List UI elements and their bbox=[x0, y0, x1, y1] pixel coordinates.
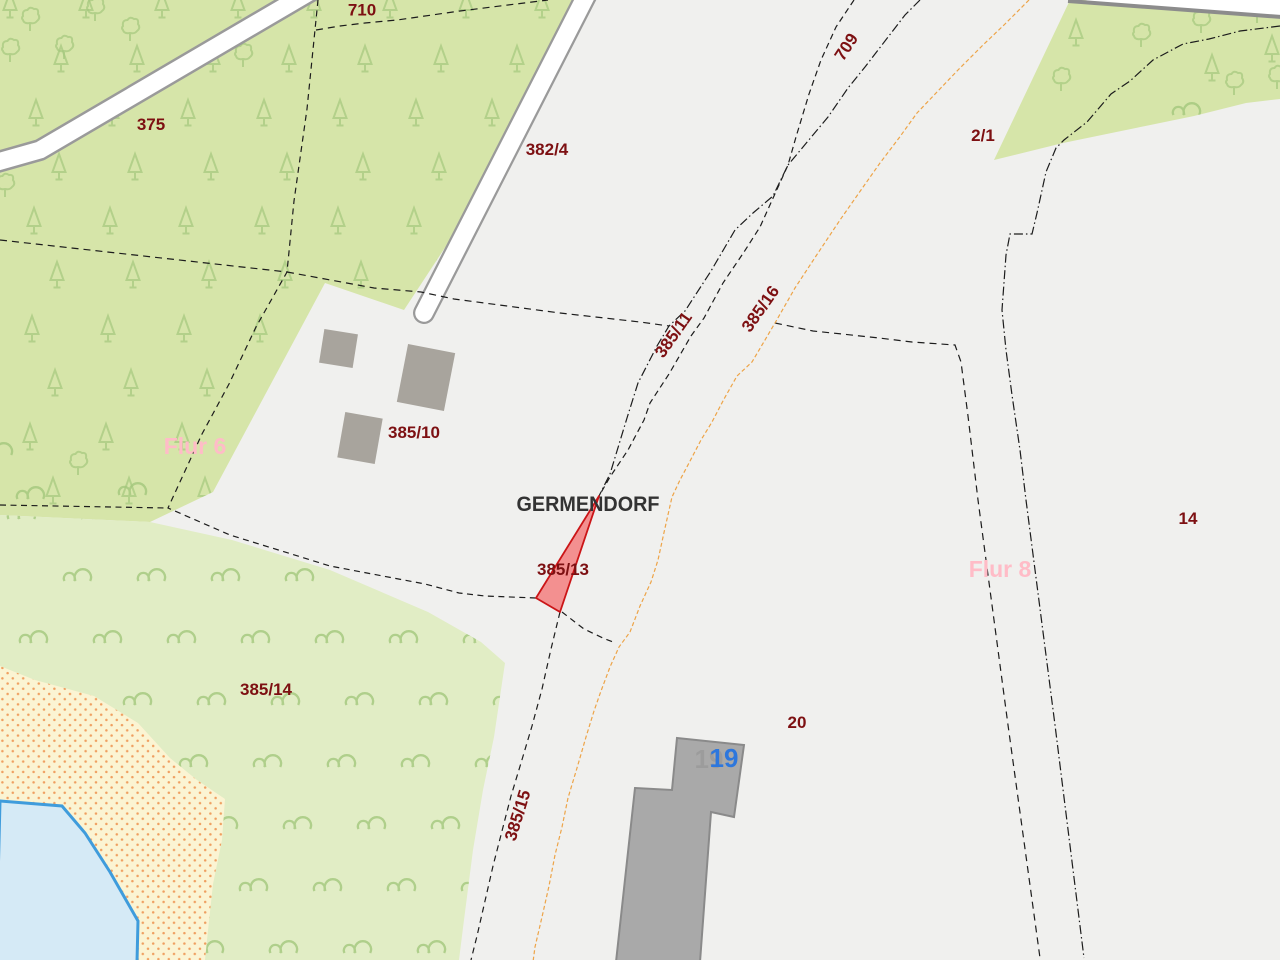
svg-text:Flur 8: Flur 8 bbox=[969, 556, 1032, 582]
svg-text:GERMENDORF: GERMENDORF bbox=[517, 493, 660, 516]
svg-text:385/13: 385/13 bbox=[537, 560, 589, 579]
svg-text:710: 710 bbox=[348, 1, 376, 20]
svg-text:375: 375 bbox=[137, 115, 165, 134]
svg-text:Flur 6: Flur 6 bbox=[164, 433, 227, 459]
svg-text:14: 14 bbox=[1179, 509, 1198, 528]
svg-text:19: 19 bbox=[710, 743, 739, 773]
svg-text:385/14: 385/14 bbox=[240, 680, 293, 699]
svg-text:385/10: 385/10 bbox=[388, 423, 440, 442]
svg-text:382/4: 382/4 bbox=[526, 140, 569, 159]
svg-text:2/1: 2/1 bbox=[971, 126, 995, 145]
svg-text:20: 20 bbox=[788, 713, 807, 732]
